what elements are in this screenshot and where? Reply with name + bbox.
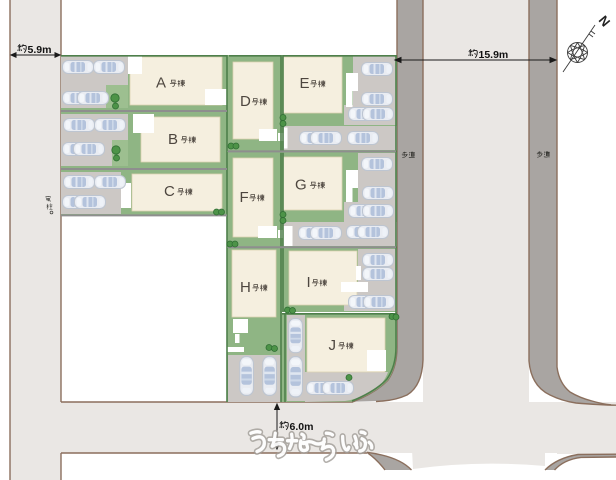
svg-text:B: B bbox=[168, 131, 178, 148]
svg-text:5.9m: 5.9m bbox=[28, 44, 52, 56]
svg-text:J: J bbox=[329, 337, 337, 354]
svg-text:D: D bbox=[240, 93, 251, 110]
svg-text:E: E bbox=[300, 75, 310, 92]
svg-text:15.9m: 15.9m bbox=[479, 49, 509, 61]
svg-text:I: I bbox=[307, 274, 311, 291]
svg-text:H: H bbox=[240, 279, 251, 296]
svg-text:C: C bbox=[164, 183, 175, 200]
svg-text:A: A bbox=[156, 75, 166, 92]
svg-text:G: G bbox=[295, 177, 307, 194]
svg-text:F: F bbox=[240, 189, 249, 206]
